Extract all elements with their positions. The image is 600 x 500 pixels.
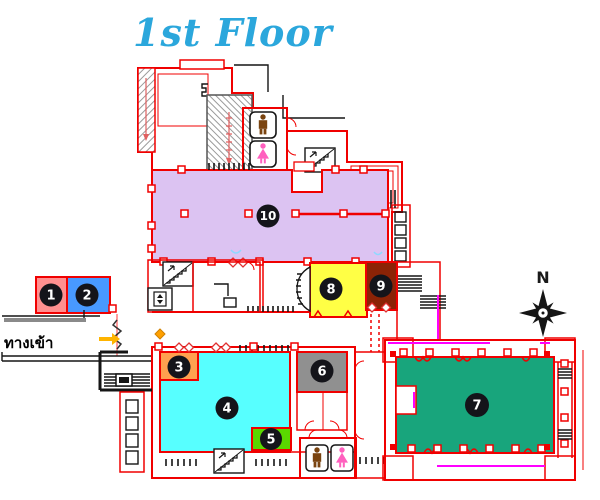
ramp-hatch-left — [138, 68, 155, 152]
svg-text:1: 1 — [46, 289, 55, 304]
corridor-room — [193, 262, 260, 312]
svg-text:10: 10 — [260, 209, 277, 223]
stairwell — [397, 262, 446, 345]
room-5-badge: 5 — [260, 428, 282, 450]
svg-text:6: 6 — [317, 365, 326, 380]
svg-text:4: 4 — [222, 402, 231, 417]
first-floor-plan: 1st Floor — [0, 0, 600, 500]
svg-text:7: 7 — [472, 399, 481, 414]
lower-block: 3 4 5 6 — [152, 343, 385, 478]
orange-door-marker — [155, 329, 165, 339]
floor-plan-page: 1st Floor — [0, 0, 600, 500]
rooms-8-9: 8 9 — [296, 262, 446, 352]
room-3-badge: 3 — [168, 356, 191, 379]
svg-text:8: 8 — [326, 283, 335, 298]
room-9-badge: 9 — [370, 275, 393, 298]
lower-stairs — [214, 449, 244, 473]
hall-7: 7 — [355, 338, 583, 480]
room-10-badge: 10 — [257, 205, 280, 228]
upper-right-corridor — [392, 205, 410, 267]
entrance-block: 1 2 ทางเข้า — [2, 277, 156, 361]
page-title: 1st Floor — [133, 10, 335, 55]
room-10: 10 — [148, 162, 389, 267]
entrance-label: ทางเข้า — [4, 334, 53, 352]
room-4-badge: 4 — [216, 397, 239, 420]
svg-text:9: 9 — [376, 280, 385, 295]
elevator-icon — [148, 288, 172, 310]
compass-north-label: N — [536, 268, 549, 287]
room-6-badge: 6 — [311, 360, 334, 383]
room-1-badge: 1 — [40, 284, 63, 307]
left-service — [100, 352, 152, 472]
central-corridor — [148, 260, 310, 339]
compass-rose-icon: N — [519, 268, 567, 337]
room-7-badge: 7 — [465, 393, 489, 417]
stair-hall-hatch — [207, 95, 252, 170]
svg-text:3: 3 — [174, 361, 183, 376]
svg-text:5: 5 — [266, 433, 275, 448]
room-2-badge: 2 — [76, 284, 99, 307]
corridor-stairs — [163, 262, 193, 286]
svg-text:2: 2 — [82, 289, 91, 304]
room-8-badge: 8 — [320, 278, 343, 301]
